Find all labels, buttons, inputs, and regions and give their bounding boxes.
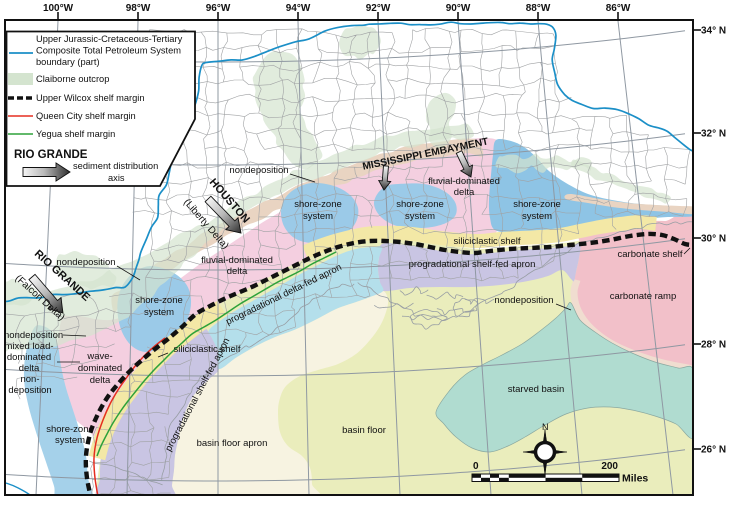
svg-text:axis: axis — [108, 173, 125, 183]
svg-text:sediment distribution: sediment distribution — [73, 161, 158, 171]
svg-text:94°W: 94°W — [286, 3, 311, 14]
svg-text:30° N: 30° N — [701, 234, 726, 245]
svg-text:shore-zone: shore-zone — [294, 199, 342, 210]
svg-text:Upper Wilcox shelf margin: Upper Wilcox shelf margin — [36, 93, 145, 103]
svg-text:Queen City shelf margin: Queen City shelf margin — [36, 111, 136, 121]
svg-text:Composite Total Petroleum Syst: Composite Total Petroleum System — [36, 46, 181, 56]
svg-text:delta: delta — [454, 187, 475, 198]
svg-text:nondeposition: nondeposition — [56, 257, 115, 268]
svg-text:system: system — [522, 211, 552, 222]
svg-text:dominated: dominated — [78, 363, 122, 374]
svg-text:shore-zone: shore-zone — [513, 199, 561, 210]
svg-text:system: system — [303, 211, 333, 222]
svg-text:delta: delta — [90, 375, 111, 386]
svg-text:basin floor apron: basin floor apron — [197, 438, 268, 449]
svg-text:system: system — [144, 307, 174, 318]
svg-text:34° N: 34° N — [701, 26, 726, 37]
svg-text:nondeposition: nondeposition — [494, 295, 553, 306]
svg-text:boundary (part): boundary (part) — [36, 57, 100, 67]
svg-text:shore-zone: shore-zone — [396, 199, 444, 210]
svg-text:28° N: 28° N — [701, 340, 726, 351]
svg-text:dominated: dominated — [7, 352, 51, 363]
svg-text:deposition: deposition — [8, 385, 51, 396]
svg-text:carbonate ramp: carbonate ramp — [610, 291, 677, 302]
svg-text:mixed load-: mixed load- — [4, 341, 53, 352]
svg-text:92°W: 92°W — [366, 3, 391, 14]
svg-text:siliciclastic shelf: siliciclastic shelf — [453, 236, 520, 247]
svg-text:96°W: 96°W — [206, 3, 231, 14]
svg-text:Claiborne outcrop: Claiborne outcrop — [36, 74, 109, 84]
svg-text:wave-: wave- — [86, 351, 112, 362]
svg-text:progradational shelf-fed apron: progradational shelf-fed apron — [409, 259, 536, 270]
svg-text:200: 200 — [601, 461, 618, 472]
svg-text:Yegua shelf margin: Yegua shelf margin — [36, 129, 115, 139]
svg-text:32° N: 32° N — [701, 129, 726, 140]
svg-text:non-: non- — [20, 374, 39, 385]
svg-text:nondeposition: nondeposition — [229, 165, 288, 176]
svg-text:siliciclastic shelf: siliciclastic shelf — [173, 344, 240, 355]
svg-text:0: 0 — [473, 461, 479, 472]
svg-text:shore-zone: shore-zone — [46, 424, 94, 435]
svg-text:Miles: Miles — [622, 473, 648, 485]
svg-text:90°W: 90°W — [446, 3, 471, 14]
svg-text:starved basin: starved basin — [508, 384, 565, 395]
svg-text:Upper Jurassic-Cretaceous-Tert: Upper Jurassic-Cretaceous-Tertiary — [36, 34, 183, 44]
svg-text:fluvial-dominated: fluvial-dominated — [201, 255, 273, 266]
svg-text:100°W: 100°W — [43, 3, 74, 14]
svg-text:fluvial-dominated: fluvial-dominated — [428, 176, 500, 187]
svg-text:88°W: 88°W — [526, 3, 551, 14]
svg-text:shore-zone: shore-zone — [135, 295, 183, 306]
svg-text:carbonate shelf: carbonate shelf — [618, 249, 683, 260]
svg-text:delta: delta — [227, 266, 248, 277]
svg-text:basin floor: basin floor — [342, 425, 386, 436]
svg-text:delta: delta — [19, 363, 40, 374]
svg-text:nondeposition: nondeposition — [4, 330, 63, 341]
svg-text:system: system — [55, 435, 85, 446]
svg-text:86°W: 86°W — [606, 3, 631, 14]
svg-text:system: system — [405, 211, 435, 222]
svg-text:RIO GRANDE: RIO GRANDE — [14, 149, 88, 161]
svg-text:26° N: 26° N — [701, 445, 726, 456]
svg-text:98°W: 98°W — [126, 3, 151, 14]
